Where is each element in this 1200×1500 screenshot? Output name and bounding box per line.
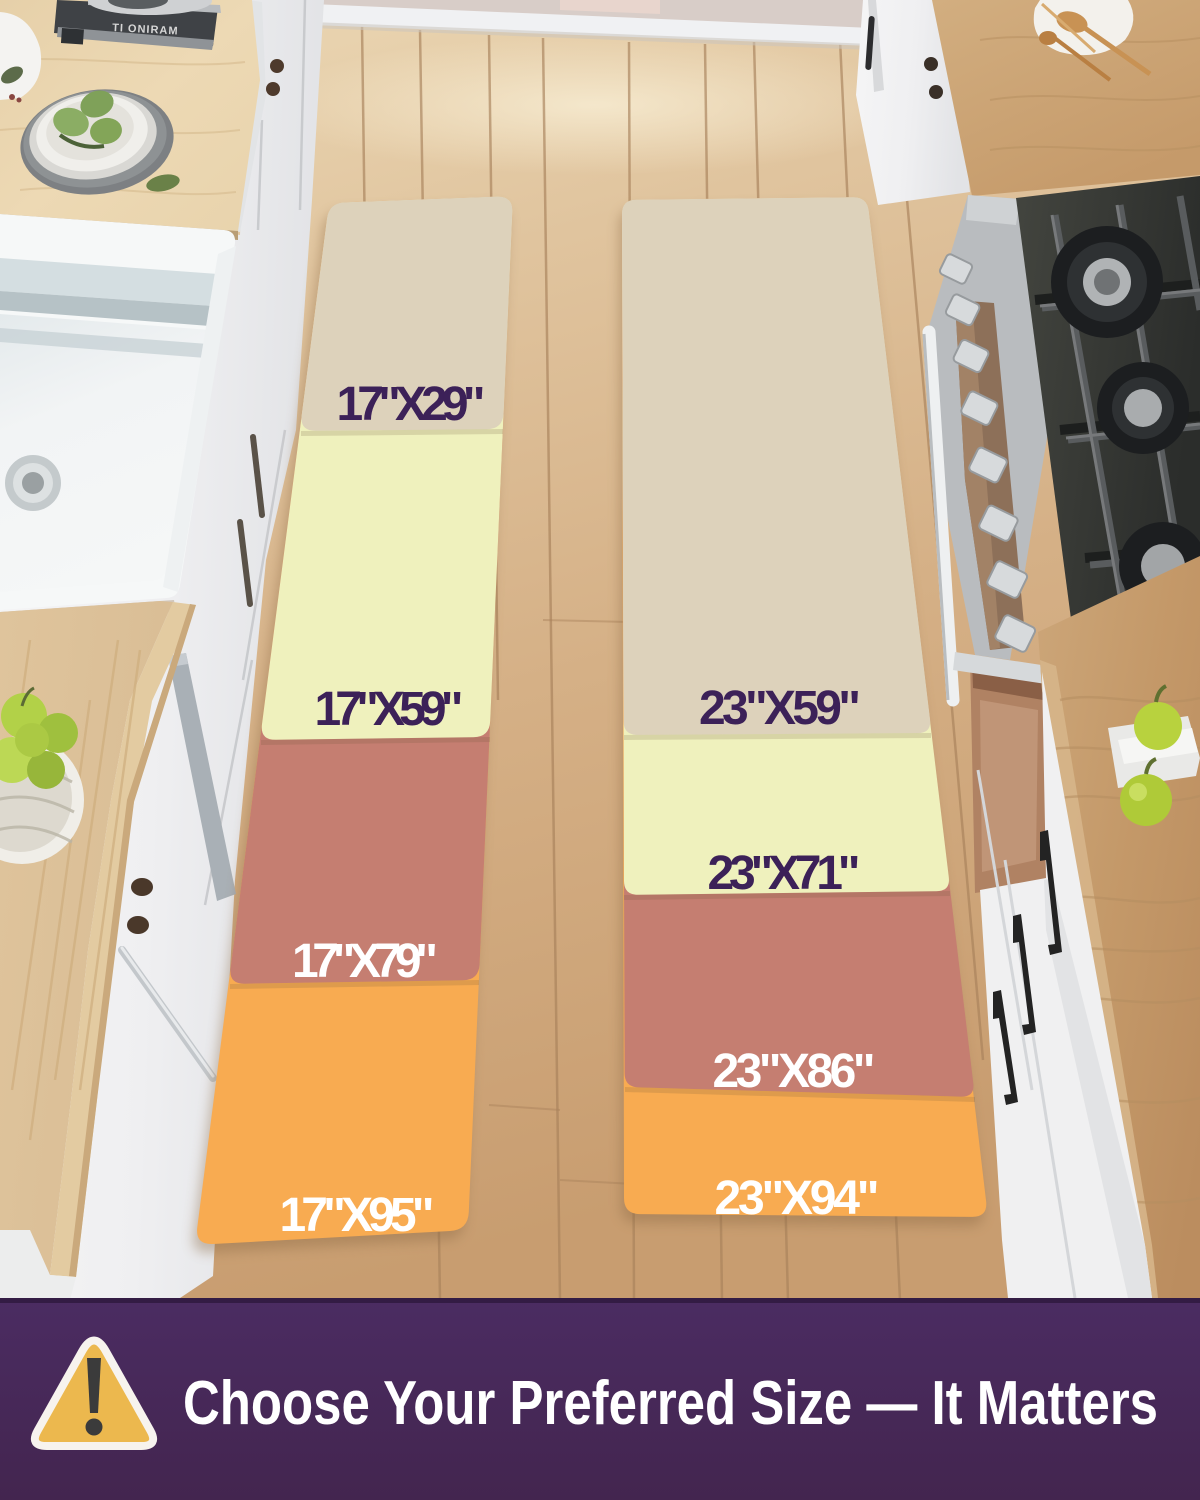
svg-text:23"X86": 23"X86" — [713, 1045, 876, 1098]
svg-text:17"X95": 17"X95" — [280, 1189, 435, 1242]
svg-text:17"X79": 17"X79" — [292, 935, 438, 988]
svg-text:17"X59": 17"X59" — [315, 683, 464, 736]
svg-text:Choose Your Preferred Size — I: Choose Your Preferred Size — It Matters — [183, 1369, 1158, 1438]
svg-text:23"X94": 23"X94" — [715, 1172, 880, 1225]
svg-text:23"X59": 23"X59" — [699, 682, 861, 735]
svg-text:17"X29": 17"X29" — [337, 378, 486, 431]
svg-text:23"X71": 23"X71" — [708, 847, 861, 900]
